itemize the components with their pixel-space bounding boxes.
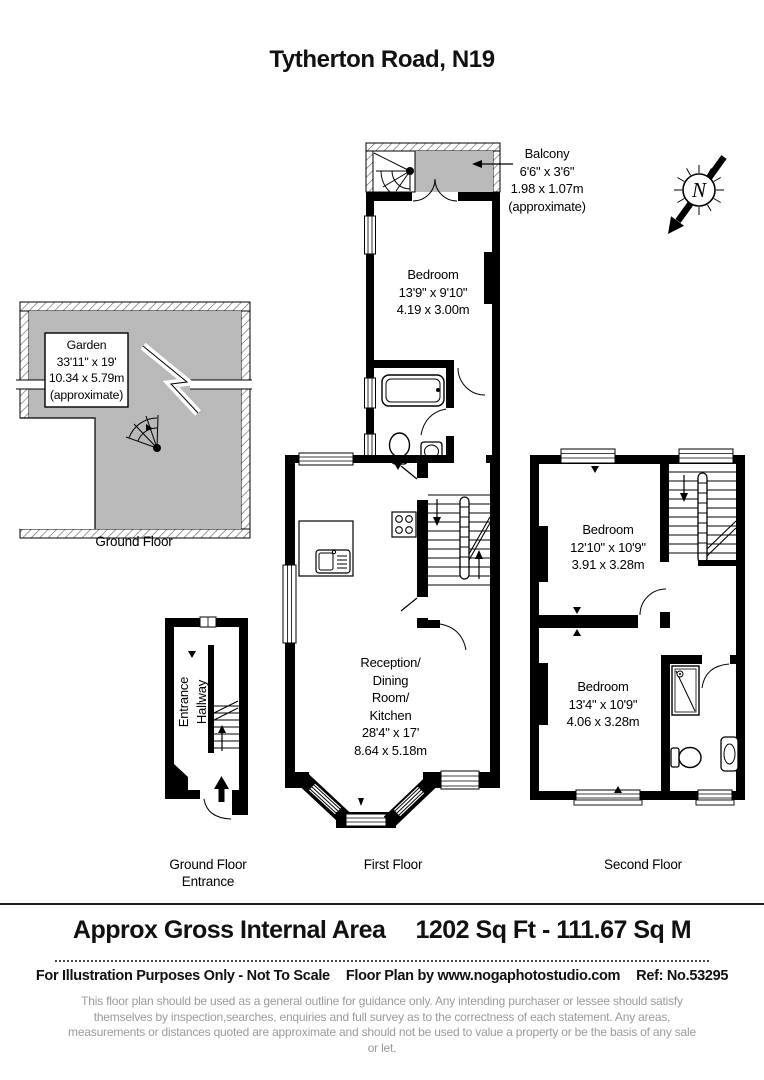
caption-second-floor: Second Floor [583, 856, 703, 873]
credit: Floor Plan by www.nogaphotostudio.com [346, 968, 620, 984]
bathroom-door-arc [702, 664, 729, 688]
sink [721, 737, 738, 771]
area-value: 1202 Sq Ft - 111.67 Sq M [415, 916, 691, 945]
bathtub [382, 375, 444, 406]
compass-icon: N [668, 157, 724, 234]
footer-divider-line [0, 903, 764, 905]
reference: Ref: No.53295 [636, 968, 728, 984]
window [299, 453, 353, 465]
window [283, 565, 296, 643]
caption-ground-floor-entrance: Ground Floor Entrance [148, 856, 268, 890]
window [365, 378, 376, 408]
bedroom-second-front-label: Bedroom 12'10" x 10'9" 3.91 x 3.28m [540, 521, 676, 574]
window [561, 449, 615, 463]
balcony [366, 143, 500, 201]
garden-label: Garden 33'11" x 19' 10.34 x 5.79m (appro… [45, 337, 128, 403]
staircase-first-floor [428, 495, 490, 585]
caption-ground-floor: Ground Floor [74, 533, 194, 550]
footer-dashed-line [55, 960, 709, 962]
caption-first-floor: First Floor [333, 856, 453, 873]
balcony-label: Balcony 6'6" x 3'6" 1.98 x 1.07m (approx… [488, 145, 606, 215]
toilet [671, 748, 701, 768]
window [696, 790, 734, 805]
disclaimer-text: This floor plan should be used as a gene… [62, 994, 702, 1056]
garden-building-cutout [20, 418, 95, 529]
floorplan-page: Tytherton Road, N19 [0, 0, 764, 1080]
illustration-note: For Illustration Purposes Only - Not To … [36, 968, 330, 984]
bathroom-door-arc [421, 409, 446, 435]
hob [392, 512, 416, 537]
window [441, 771, 479, 789]
staircase-entrance [214, 701, 239, 751]
compass-n-label: N [691, 178, 707, 202]
window [679, 449, 733, 463]
entrance-hallway-label: Entrance Hallway [175, 642, 211, 762]
bedroom-door-arc [640, 589, 666, 615]
window [365, 216, 376, 254]
window [365, 434, 376, 458]
second-floor-plan [530, 449, 745, 805]
bedroom-door-arc [458, 368, 485, 395]
window [200, 617, 216, 627]
door-leaf [401, 466, 417, 611]
window [574, 790, 642, 805]
kitchen-counter-sink [299, 521, 353, 576]
bay-window [303, 779, 433, 828]
staircase-second-floor [669, 472, 736, 566]
bedroom-second-back-label: Bedroom 13'4" x 10'9" 4.06 x 3.28m [535, 678, 671, 731]
reception-label: Reception/ Dining Room/ Kitchen 28'4" x … [318, 654, 463, 759]
entrance-arrow-icon [214, 776, 229, 802]
shower [672, 666, 699, 715]
entrance-door-arc [204, 799, 231, 819]
bedroom-first-floor-label: Bedroom 13'9" x 9'10" 4.19 x 3.00m [366, 266, 500, 319]
area-label: Approx Gross Internal Area [73, 916, 386, 945]
gross-internal-area: Approx Gross Internal Area 1202 Sq Ft - … [0, 916, 764, 945]
footer-info-line: For Illustration Purposes Only - Not To … [0, 968, 764, 984]
landing-door-arc [440, 624, 466, 650]
